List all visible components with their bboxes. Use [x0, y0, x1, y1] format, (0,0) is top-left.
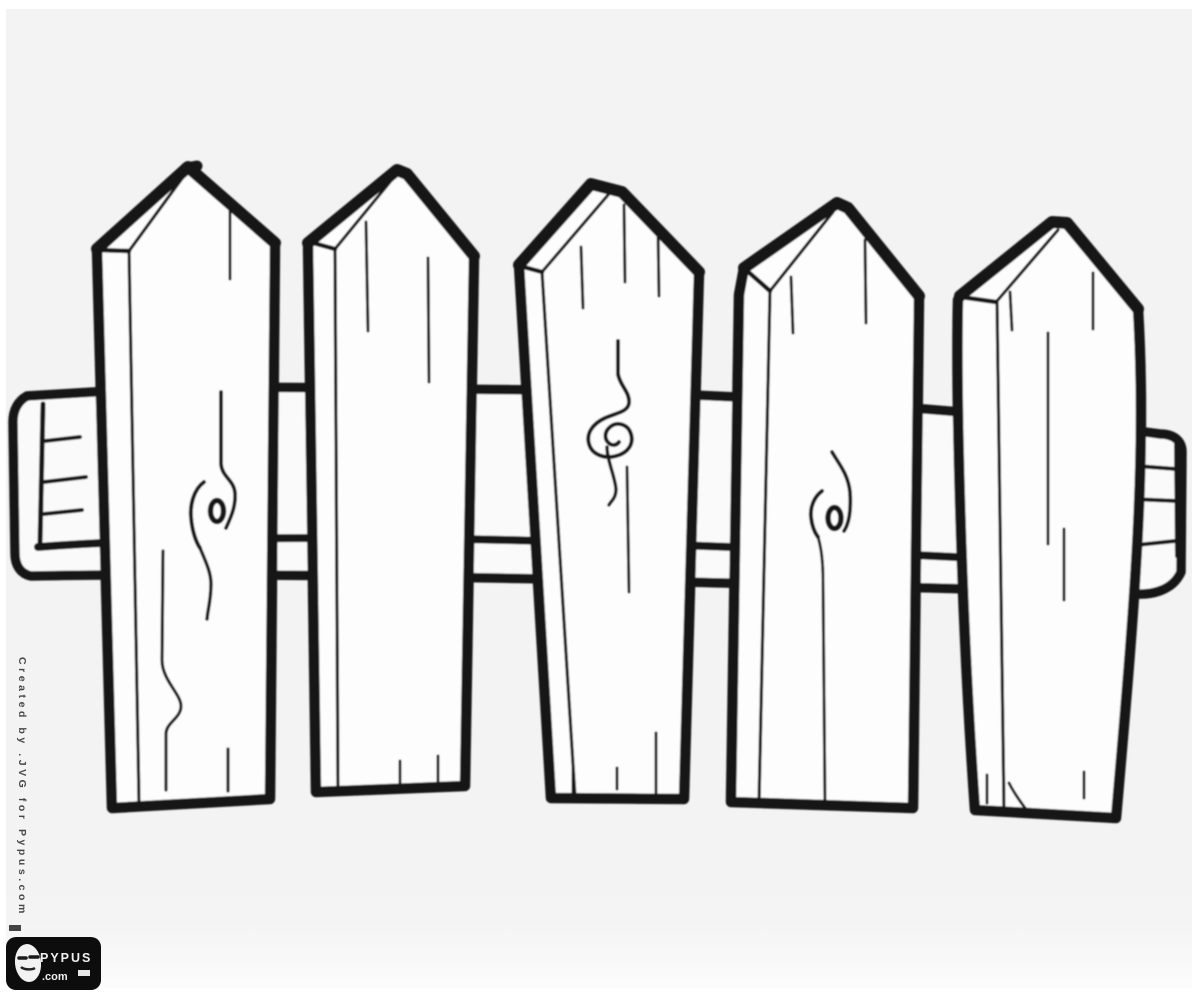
- svg-text:Created by .JVG for Pypus.com: Created by .JVG for Pypus.com: [16, 657, 28, 917]
- svg-text:PYPUS: PYPUS: [40, 951, 92, 965]
- svg-text:.com: .com: [42, 971, 68, 983]
